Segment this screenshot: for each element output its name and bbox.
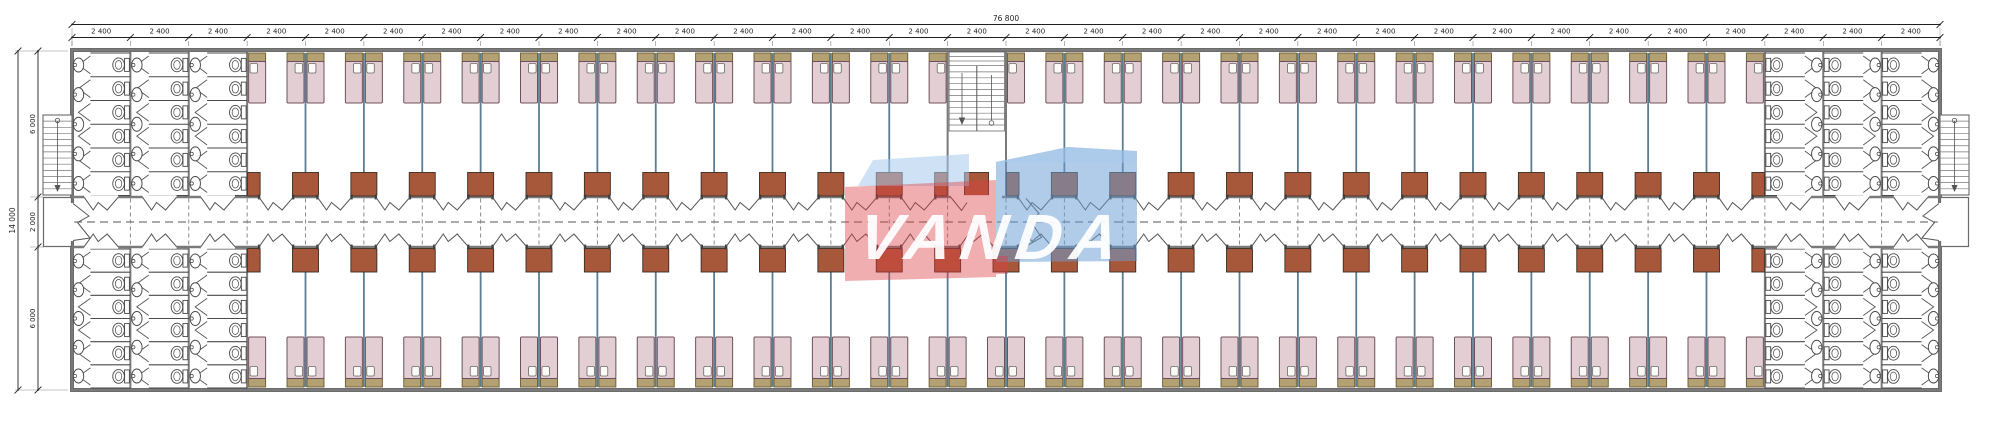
wc-toilet [1766, 370, 1783, 384]
bed [1746, 53, 1763, 103]
wc-tank [1766, 370, 1771, 383]
sink [1928, 88, 1938, 102]
door-opening [434, 195, 468, 199]
bed [1746, 337, 1763, 387]
sink-tap [1819, 152, 1822, 155]
wc-toilet [1824, 370, 1841, 384]
wc-bowl [230, 346, 242, 360]
bed-headboard [1513, 53, 1530, 62]
bed-pillow [996, 367, 1004, 377]
sink-tap [73, 317, 76, 320]
wc-toilet [1766, 300, 1783, 314]
cabinet [293, 249, 319, 273]
sink [1870, 312, 1880, 326]
bed [1688, 337, 1705, 387]
bed-pillow [704, 64, 712, 74]
dim-label-segment: 2 000 [29, 212, 37, 232]
bed-headboard [657, 53, 674, 62]
sink [1870, 177, 1880, 191]
wc-toilet [230, 370, 247, 384]
bed [1279, 337, 1296, 387]
wc-tank [1824, 58, 1829, 71]
bed-pillow [1754, 367, 1762, 377]
bed [637, 337, 654, 387]
bed-pillow [1754, 64, 1762, 74]
wc-tank [1883, 106, 1888, 119]
sink-tap [1819, 182, 1822, 185]
bed-headboard [307, 379, 324, 388]
bed-pillow [937, 64, 945, 74]
bed [345, 53, 362, 103]
wc-bowl [230, 277, 242, 291]
cabinet [1577, 173, 1603, 197]
bed [832, 53, 849, 103]
bed-pillow [1126, 64, 1134, 74]
wc-toilet [1883, 153, 1900, 167]
sink-tap [1877, 288, 1880, 291]
dim-label-module: 2 400 [1317, 28, 1337, 36]
wc-bowl [171, 370, 183, 384]
wc-toilet [113, 300, 130, 314]
cabinet [643, 173, 669, 197]
dim-tick-dot [1297, 37, 1299, 39]
wc-tank [183, 58, 188, 71]
bed-pillow [1534, 367, 1542, 377]
cabinet [1168, 173, 1194, 197]
wc-bowl [171, 277, 183, 291]
sink-tap [73, 63, 76, 66]
cabinet [409, 173, 435, 197]
dim-tick-dot [129, 37, 131, 39]
dim-tick-dot [1764, 37, 1766, 39]
wc-toilet [230, 82, 247, 96]
wc-tank [125, 82, 130, 95]
wc-bowl [1829, 153, 1841, 167]
bed [1299, 337, 1316, 387]
wc-bowl [171, 346, 183, 360]
bed-headboard [1338, 379, 1355, 388]
bed [1630, 337, 1647, 387]
wc-tank [1824, 254, 1829, 267]
door-opening [668, 245, 702, 249]
wc-tank [125, 277, 130, 290]
wc-toilet [113, 323, 130, 337]
dim-tick-dot [246, 37, 248, 39]
door-opening [201, 245, 235, 249]
door-opening [1543, 245, 1577, 249]
bed-headboard [1746, 379, 1763, 388]
wc-toilet [113, 177, 130, 191]
wc-bowl [171, 129, 183, 143]
door-opening [259, 245, 293, 249]
wc-toilet [1824, 82, 1841, 96]
sink [73, 58, 83, 72]
bed-headboard [1630, 53, 1647, 62]
wc-tank [1766, 82, 1771, 95]
wc-bowl [171, 82, 183, 96]
floor-plan-svg: 76 8002 4002 4002 4002 4002 4002 4002 40… [0, 0, 2000, 427]
door-opening [376, 245, 410, 249]
wc-tank [1824, 324, 1829, 337]
cabinet [760, 173, 786, 197]
wc-bowl [171, 254, 183, 268]
door-opening [1719, 245, 1753, 249]
bed [521, 53, 538, 103]
bed [1279, 53, 1296, 103]
bed-headboard [1241, 53, 1258, 62]
wc-bowl [113, 105, 125, 119]
sink [190, 254, 200, 268]
bed-pillow [1112, 367, 1120, 377]
bed-pillow [250, 64, 258, 74]
door-opening [493, 195, 527, 199]
cabinet [1752, 173, 1765, 197]
wc-bowl [113, 82, 125, 96]
dim-tick-dot [1180, 37, 1182, 39]
bed [754, 53, 771, 103]
door-opening [551, 195, 585, 199]
bed [404, 53, 421, 103]
cabinet [701, 173, 727, 197]
sink [1928, 147, 1938, 161]
bed-pillow [1112, 64, 1120, 74]
bed-headboard [1066, 379, 1083, 388]
door-opening [493, 245, 527, 249]
wc-toilet [230, 153, 247, 167]
wc-toilet [1883, 277, 1900, 291]
door-opening [1660, 245, 1694, 249]
wc-bowl [1829, 254, 1841, 268]
sink-tap [1935, 182, 1938, 185]
sink-tap [1819, 346, 1822, 349]
cabinet [1635, 173, 1661, 197]
sink [1928, 254, 1938, 268]
door-opening [376, 195, 410, 199]
sink-tap [132, 63, 135, 66]
wc-bowl [1771, 277, 1783, 291]
bed-headboard [1241, 379, 1258, 388]
wc-tank [1766, 130, 1771, 143]
door-opening [70, 203, 74, 241]
wc-tank [241, 177, 246, 190]
bed [365, 53, 382, 103]
sink [132, 340, 142, 354]
wc-tank [1766, 153, 1771, 166]
entrance-landing [1941, 198, 1969, 247]
bed-pillow [834, 64, 842, 74]
wc-tank [125, 153, 130, 166]
bed [1533, 337, 1550, 387]
dim-label-module: 2 400 [441, 28, 461, 36]
bed-pillow [1534, 64, 1542, 74]
wc-tank [241, 347, 246, 360]
door-opening [259, 195, 293, 199]
bed-pillow [1418, 367, 1426, 377]
bed [1591, 53, 1608, 103]
sink-tap [1819, 93, 1822, 96]
wc-bowl [113, 177, 125, 191]
bed-headboard [1338, 53, 1355, 62]
wc-bowl [1829, 370, 1841, 384]
bed [307, 337, 324, 387]
cabinet [1343, 249, 1369, 273]
wc-toilet [1883, 370, 1900, 384]
wc-toilet [113, 82, 130, 96]
bed-headboard [1650, 53, 1667, 62]
wc-tank [1883, 347, 1888, 360]
dim-label-module: 2 400 [1025, 28, 1045, 36]
bed [657, 53, 674, 103]
dim-tick-dot [1355, 37, 1357, 39]
bed [1066, 53, 1083, 103]
wc-bowl [171, 153, 183, 167]
bed-pillow [1404, 367, 1412, 377]
bed-pillow [412, 367, 420, 377]
sink [1870, 88, 1880, 102]
bed-pillow [470, 64, 478, 74]
bed-pillow [892, 64, 900, 74]
dim-tick-dot [363, 37, 365, 39]
door-opening [143, 195, 177, 199]
cabinet [1460, 249, 1486, 273]
bed-headboard [1279, 53, 1296, 62]
wc-tank [125, 58, 130, 71]
bed-headboard [1008, 53, 1025, 62]
wc-tank [241, 106, 246, 119]
bed [1338, 337, 1355, 387]
dim-label-total-height: 14 000 [8, 207, 17, 233]
wc-toilet [1766, 254, 1783, 268]
wc-tank [1766, 58, 1771, 71]
bed [287, 337, 304, 387]
dim-label-module: 2 400 [967, 28, 987, 36]
bed-pillow [1696, 367, 1704, 377]
bed-headboard [696, 379, 713, 388]
wc-bowl [1888, 370, 1900, 384]
bed-headboard [1066, 53, 1083, 62]
bed [774, 53, 791, 103]
bed-headboard [404, 53, 421, 62]
sink [190, 88, 200, 102]
bed-pillow [1709, 64, 1717, 74]
sink [1928, 177, 1938, 191]
bed-headboard [462, 379, 479, 388]
sink-tap [73, 259, 76, 262]
bed-pillow [820, 367, 828, 377]
door-opening [1252, 195, 1286, 199]
bed-headboard [462, 53, 479, 62]
door-opening [1719, 195, 1753, 199]
wc-bowl [1829, 105, 1841, 119]
dim-tick-dot [1005, 37, 1007, 39]
wc-toilet [1824, 323, 1841, 337]
bed-headboard [891, 53, 908, 62]
wc-tank [1766, 277, 1771, 290]
bed [1650, 337, 1667, 387]
bed [1183, 53, 1200, 103]
bed [1416, 53, 1433, 103]
wc-toilet [171, 300, 188, 314]
bed-headboard [1163, 379, 1180, 388]
bed [1396, 53, 1413, 103]
bed-headboard [1183, 53, 1200, 62]
wc-bowl [230, 177, 242, 191]
wc-toilet [1824, 254, 1841, 268]
bed [774, 337, 791, 387]
bed-headboard [1396, 379, 1413, 388]
wc-tank [183, 153, 188, 166]
wc-tank [1766, 300, 1771, 313]
wc-tank [1883, 370, 1888, 383]
bed-pillow [1463, 64, 1471, 74]
bed [716, 337, 733, 387]
wc-bowl [230, 58, 242, 72]
wc-bowl [171, 58, 183, 72]
bed-headboard [754, 53, 771, 62]
dim-tick-dot [188, 37, 190, 39]
cabinet [468, 249, 494, 273]
door-opening [551, 245, 585, 249]
dim-tick-dot [71, 24, 73, 26]
wc-toilet [230, 346, 247, 360]
dim-tick-dot [71, 37, 73, 39]
wc-tank [241, 300, 246, 313]
wc-bowl [230, 300, 242, 314]
bed [1008, 53, 1025, 103]
bed [482, 337, 499, 387]
wc-bowl [1771, 58, 1783, 72]
bed [1358, 337, 1375, 387]
sink [1870, 147, 1880, 161]
bed [249, 53, 266, 103]
wc-bowl [1829, 82, 1841, 96]
wc-bowl [1888, 277, 1900, 291]
dim-label-module: 2 400 [1434, 28, 1454, 36]
wc-toilet [1883, 58, 1900, 72]
bed [1124, 337, 1141, 387]
wc-tank [1824, 82, 1829, 95]
wc-toilet [230, 277, 247, 291]
door-opening [1777, 245, 1811, 249]
bed-pillow [1521, 64, 1529, 74]
bed-headboard [307, 53, 324, 62]
bed-pillow [1579, 64, 1587, 74]
wc-toilet [171, 277, 188, 291]
dim-label-segment: 6 000 [29, 114, 37, 134]
sink-tap [1935, 288, 1938, 291]
wc-bowl [1888, 82, 1900, 96]
bed [988, 337, 1005, 387]
cabinet [468, 173, 494, 197]
dim-tick-dot [1939, 37, 1941, 39]
dim-tick-dot [1530, 37, 1532, 39]
cabinet [526, 173, 552, 197]
wc-tank [241, 254, 246, 267]
sink-tap [1935, 63, 1938, 66]
bed-pillow [704, 367, 712, 377]
wc-tank [1766, 324, 1771, 337]
bed [462, 53, 479, 103]
wc-bowl [171, 177, 183, 191]
bed-pillow [1346, 367, 1354, 377]
sink-tap [190, 182, 193, 185]
bed [1475, 53, 1492, 103]
wc-toilet [1824, 129, 1841, 143]
bed-headboard [812, 53, 829, 62]
wc-bowl [113, 277, 125, 291]
cabinet [1752, 249, 1765, 273]
wc-toilet [1766, 277, 1783, 291]
bed [657, 337, 674, 387]
bed-pillow [1709, 367, 1717, 377]
wc-tank [1883, 324, 1888, 337]
bed-headboard [541, 53, 558, 62]
bed [1708, 53, 1725, 103]
bed-pillow [1476, 64, 1484, 74]
wc-tank [1824, 106, 1829, 119]
sink-tap [1877, 152, 1880, 155]
sink-tap [73, 182, 76, 185]
wc-toilet [1883, 129, 1900, 143]
bed-pillow [484, 64, 492, 74]
door-opening [1938, 203, 1942, 241]
bed [345, 337, 362, 387]
bed-headboard [929, 53, 946, 62]
bed [929, 337, 946, 387]
door-opening [1135, 245, 1169, 249]
wc-tank [183, 254, 188, 267]
cabinet [643, 249, 669, 273]
bed-headboard [287, 53, 304, 62]
bed-pillow [367, 64, 375, 74]
bed-headboard [754, 379, 771, 388]
cabinet [1285, 173, 1311, 197]
door-opening [1193, 195, 1227, 199]
bed [1571, 337, 1588, 387]
sink-tap [73, 152, 76, 155]
dim-label-module: 2 400 [675, 28, 695, 36]
wc-toilet [1824, 346, 1841, 360]
dim-tick-dot [1647, 37, 1649, 39]
wc-tank [183, 106, 188, 119]
bed [424, 53, 441, 103]
wc-bowl [1829, 300, 1841, 314]
bed-headboard [832, 379, 849, 388]
wc-bowl [1888, 129, 1900, 143]
cabinet [1285, 249, 1311, 273]
sink [1870, 340, 1880, 354]
door-opening [1602, 195, 1636, 199]
sink-tap [132, 288, 135, 291]
sink-tap [1877, 374, 1880, 377]
sink-tap [190, 123, 193, 126]
bed-pillow [353, 64, 361, 74]
wc-bowl [1771, 153, 1783, 167]
wc-tank [183, 177, 188, 190]
wc-bowl [230, 129, 242, 143]
wc-toilet [171, 370, 188, 384]
sink [190, 177, 200, 191]
bed-headboard [774, 53, 791, 62]
bed-headboard [521, 379, 538, 388]
sink [1870, 369, 1880, 383]
dim-tick-dot [772, 37, 774, 39]
sink-tap [1819, 288, 1822, 291]
bed-pillow [1696, 64, 1704, 74]
door-opening [1660, 195, 1694, 199]
wc-bowl [1888, 254, 1900, 268]
sink-tap [73, 93, 76, 96]
